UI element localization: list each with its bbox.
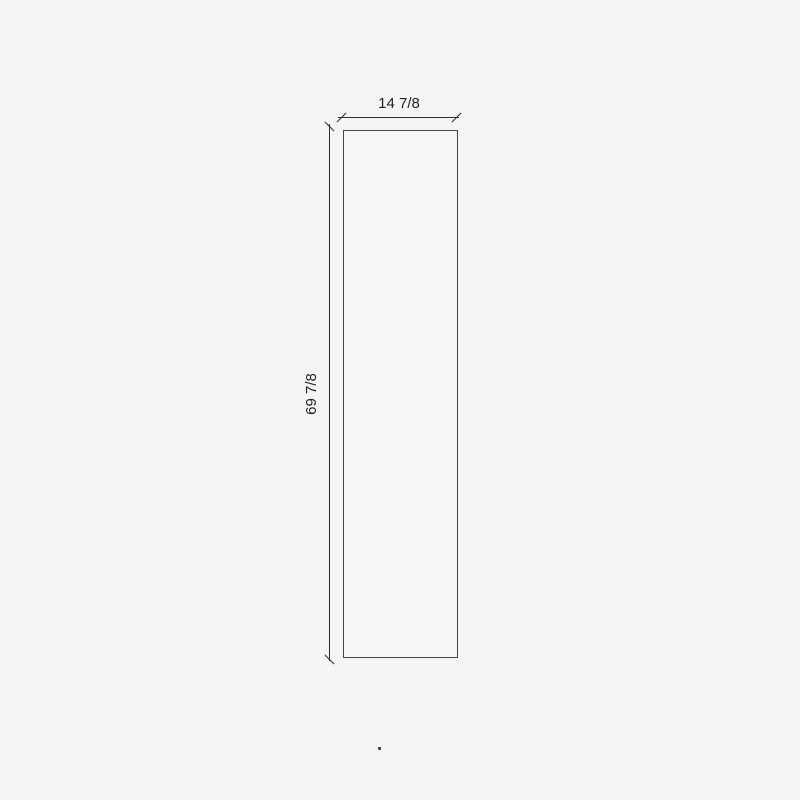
- width-dimension-label: 14 7/8: [339, 95, 459, 113]
- height-dimension-label: 69 7/8: [303, 354, 323, 434]
- drawing-canvas: 14 7/8 69 7/8: [0, 0, 800, 800]
- width-dimension-line: [338, 117, 459, 118]
- stray-dot: [378, 747, 381, 750]
- height-dimension-line: [329, 124, 330, 661]
- panel-rectangle: [343, 130, 458, 658]
